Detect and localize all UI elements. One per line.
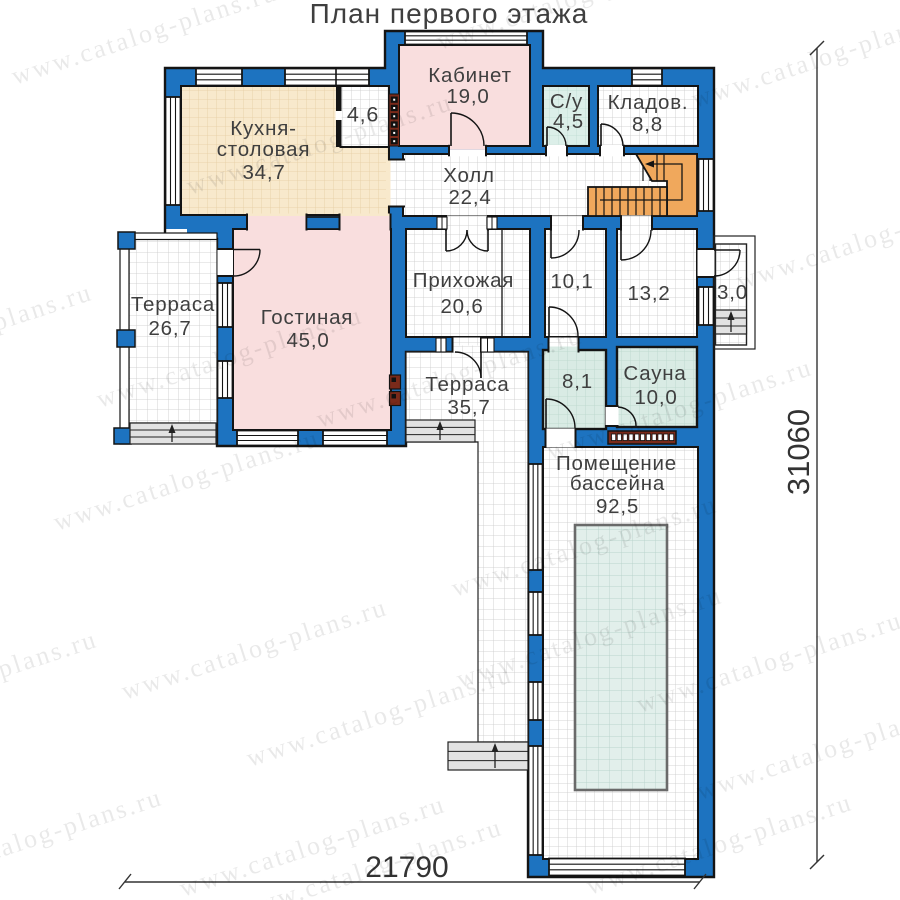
svg-text:бассейна: бассейна — [570, 472, 665, 495]
svg-text:8,8: 8,8 — [632, 113, 663, 136]
svg-text:10,1: 10,1 — [550, 270, 593, 293]
svg-text:13,2: 13,2 — [627, 282, 670, 305]
svg-text:26,7: 26,7 — [148, 317, 191, 340]
svg-text:31060: 31060 — [781, 409, 816, 495]
svg-text:Прихожая: Прихожая — [413, 269, 514, 292]
svg-text:Сауна: Сауна — [623, 362, 686, 385]
svg-text:35,7: 35,7 — [447, 396, 490, 419]
svg-text:4,5: 4,5 — [553, 110, 584, 133]
svg-text:Кухня-: Кухня- — [230, 117, 297, 140]
svg-text:20,6: 20,6 — [440, 295, 483, 318]
svg-text:Холл: Холл — [443, 164, 495, 187]
svg-text:22,4: 22,4 — [448, 186, 491, 209]
svg-text:19,0: 19,0 — [446, 85, 489, 108]
svg-text:Кладов.: Кладов. — [608, 91, 689, 114]
svg-text:8,1: 8,1 — [562, 370, 593, 393]
svg-text:Кабинет: Кабинет — [428, 64, 512, 87]
svg-text:Терраса: Терраса — [131, 293, 215, 316]
